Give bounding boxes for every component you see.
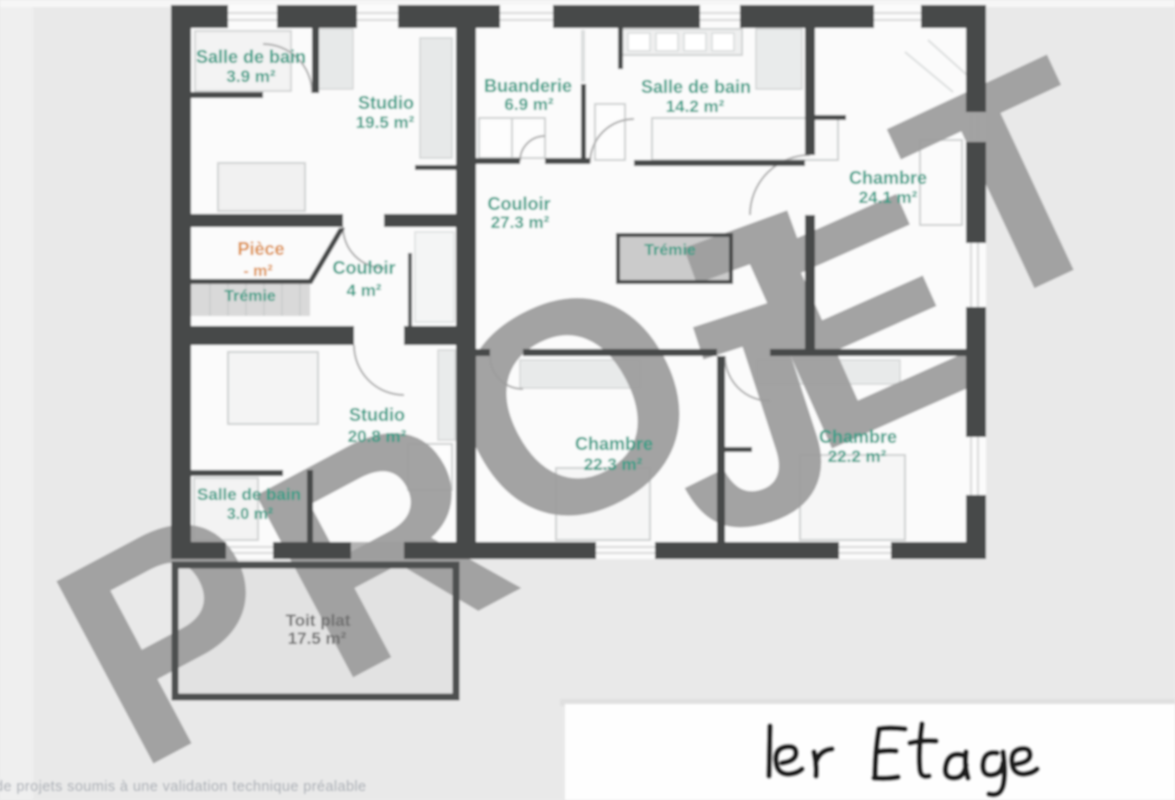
svg-text:14.2 m²: 14.2 m² [666, 97, 725, 116]
svg-text:6.9 m²: 6.9 m² [504, 95, 553, 114]
svg-text:24.1 m²: 24.1 m² [859, 188, 918, 207]
svg-text:Trémie: Trémie [644, 242, 696, 259]
svg-text:Salle de bain: Salle de bain [197, 485, 301, 504]
svg-text:Pièce: Pièce [237, 239, 284, 259]
svg-text:Salle de bain: Salle de bain [641, 77, 751, 97]
svg-text:Buanderie: Buanderie [484, 76, 572, 96]
svg-text:Chambre: Chambre [849, 168, 927, 188]
svg-text:4 m²: 4 m² [347, 281, 382, 300]
svg-text:22.2 m²: 22.2 m² [828, 447, 887, 466]
svg-text:3.0 m²: 3.0 m² [227, 506, 273, 523]
svg-text:20.8 m²: 20.8 m² [348, 427, 407, 446]
svg-text:Chambre: Chambre [819, 427, 897, 447]
svg-text:Salle de bain: Salle de bain [196, 47, 306, 67]
svg-text:3.9 m²: 3.9 m² [226, 67, 275, 86]
svg-text:- m²: - m² [243, 263, 272, 280]
svg-text:tions de projets soumis à une: tions de projets soumis à une validation… [0, 779, 367, 795]
svg-text:27.3 m²: 27.3 m² [491, 213, 550, 232]
svg-text:Couloir: Couloir [333, 258, 396, 278]
svg-text:Couloir: Couloir [488, 194, 551, 214]
svg-text:22.3 m²: 22.3 m² [584, 455, 643, 474]
svg-text:17.5 m²: 17.5 m² [288, 629, 347, 648]
svg-text:19.5 m²: 19.5 m² [356, 113, 415, 132]
svg-text:Chambre: Chambre [575, 434, 653, 454]
svg-text:Studio: Studio [358, 93, 414, 113]
svg-text:Trémie: Trémie [224, 288, 276, 305]
svg-text:Toit plat: Toit plat [286, 611, 351, 630]
svg-text:Studio: Studio [349, 405, 405, 425]
